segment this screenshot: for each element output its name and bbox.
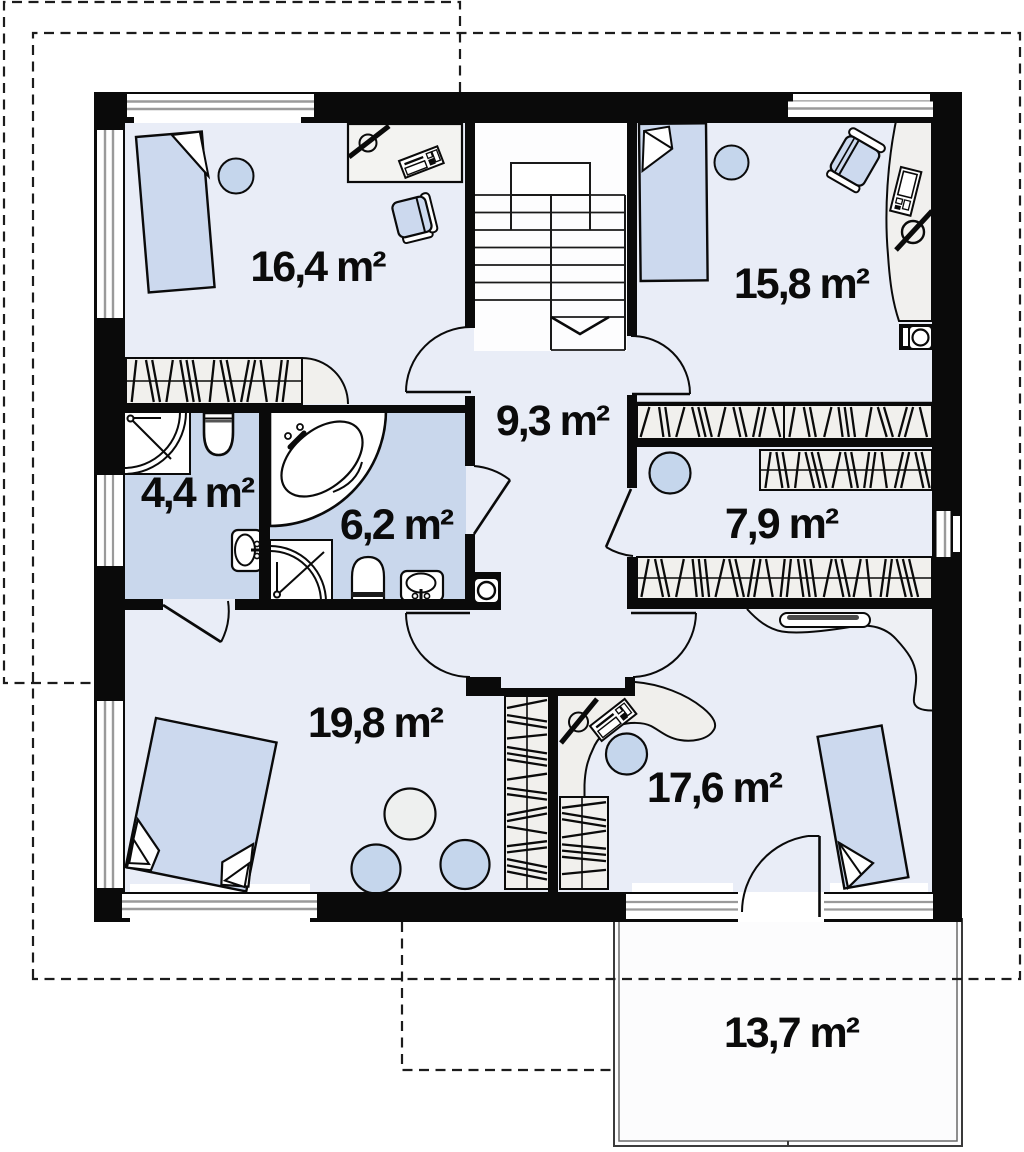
svg-text:17,6 m²: 17,6 m² [647,764,783,812]
svg-text:16,4 m²: 16,4 m² [250,243,386,291]
svg-text:4,4 m²: 4,4 m² [141,469,255,517]
svg-text:15,8 m²: 15,8 m² [734,260,870,308]
svg-text:7,9 m²: 7,9 m² [725,500,839,548]
svg-text:9,3 m²: 9,3 m² [496,397,610,445]
svg-text:13,7 m²: 13,7 m² [724,1009,860,1057]
svg-text:19,8 m²: 19,8 m² [308,699,444,747]
svg-text:6,2 m²: 6,2 m² [340,501,454,549]
